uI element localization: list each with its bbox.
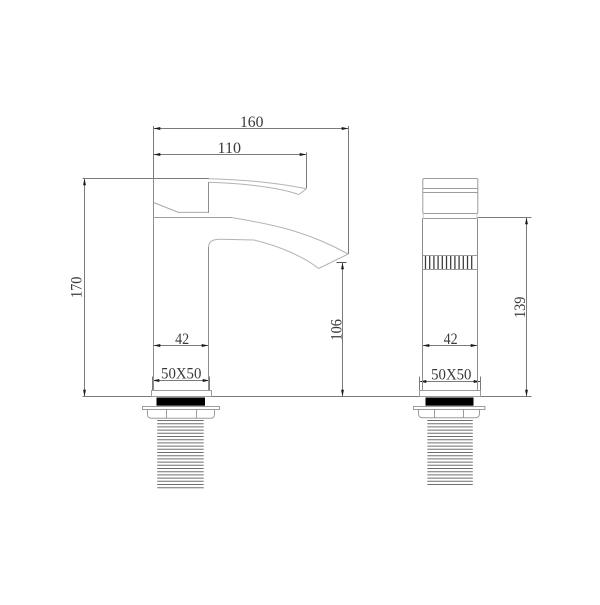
svg-text:110: 110 [218,140,242,157]
svg-text:139: 139 [512,297,529,318]
svg-text:160: 160 [240,114,264,131]
svg-text:42: 42 [444,331,458,348]
svg-text:42: 42 [175,331,189,348]
svg-text:50X50: 50X50 [431,367,471,384]
svg-text:50X50: 50X50 [161,365,201,382]
svg-text:170: 170 [69,277,86,298]
svg-text:106: 106 [329,319,346,340]
